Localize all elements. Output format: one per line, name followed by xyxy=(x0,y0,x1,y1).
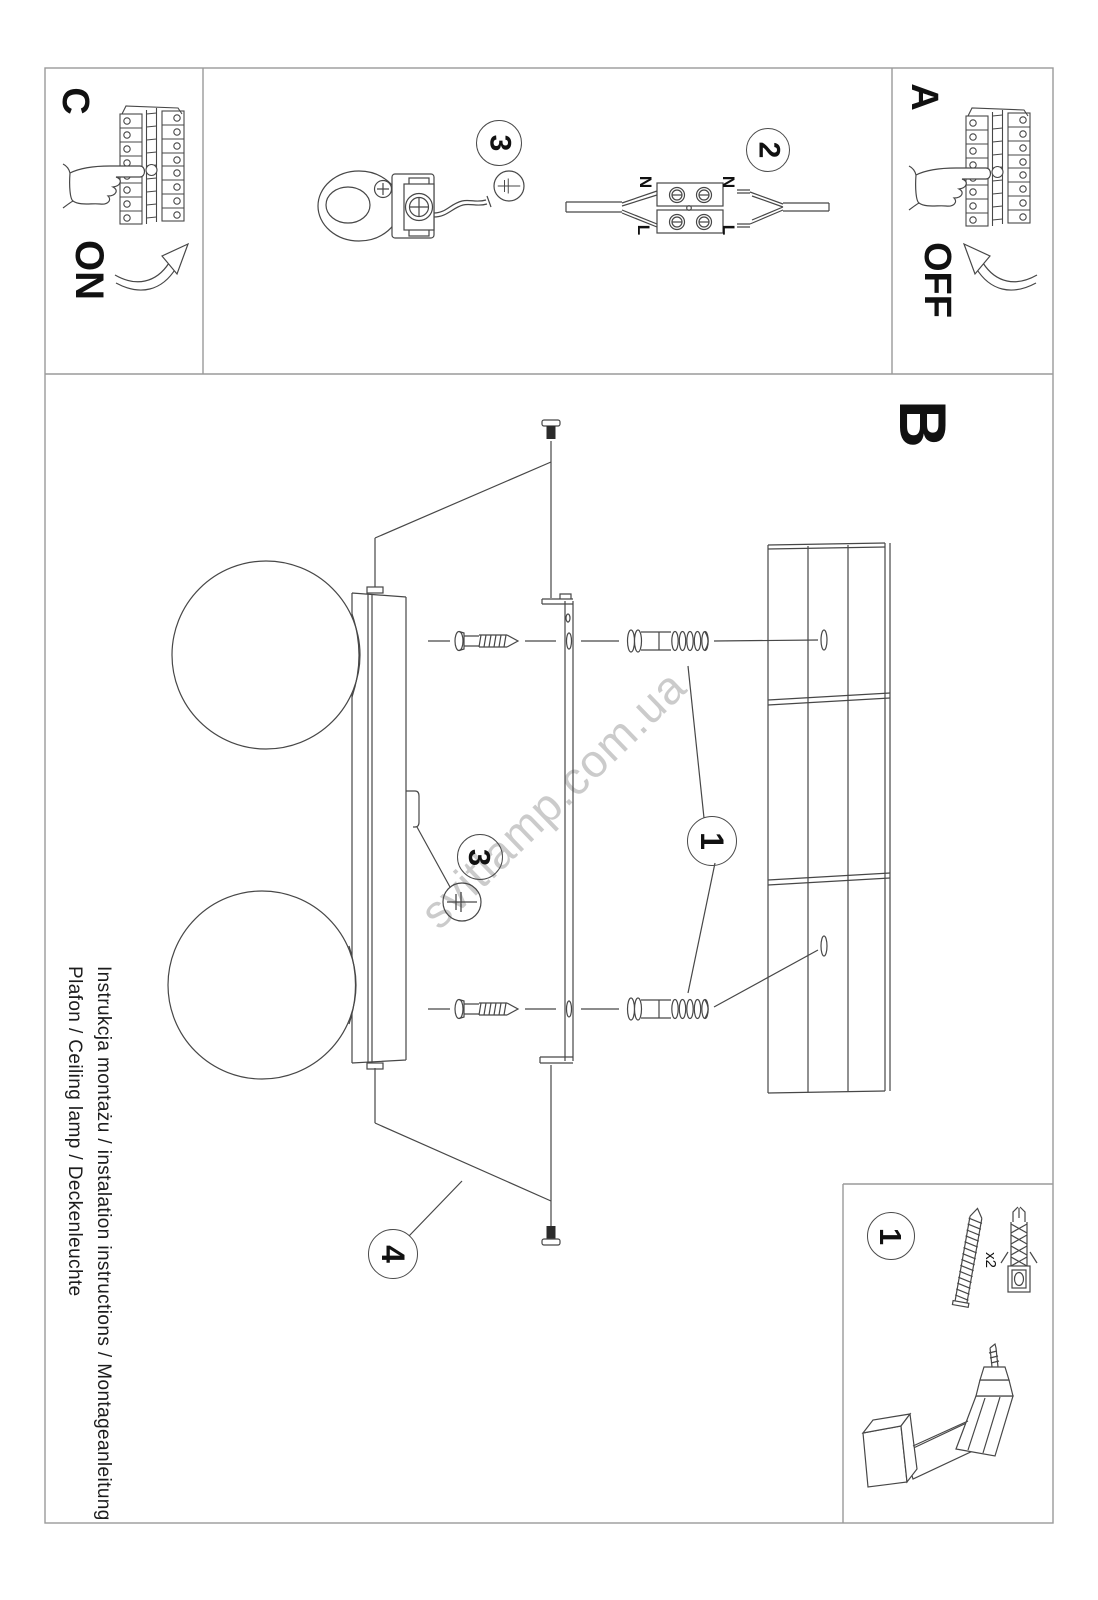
off-arrow-icon xyxy=(964,244,1037,290)
section-label-b: B xyxy=(883,384,963,464)
manual-title-line2: Plafon / Ceiling lamp / Deckenleuchte xyxy=(63,966,85,1297)
lamp-sphere-top xyxy=(172,561,360,749)
kit-wall-plug xyxy=(1001,1207,1037,1292)
wiring-terminals-illustration xyxy=(566,183,829,233)
section-label-c: C xyxy=(45,71,105,131)
wire-label-n-left: N xyxy=(635,171,657,193)
wire-label-l-left: L xyxy=(633,219,655,241)
cable-clamp-illustration xyxy=(318,171,524,241)
callout-clamp-step: 3 xyxy=(476,120,522,166)
top-mount-screw xyxy=(375,420,560,598)
switch-state-off: OFF xyxy=(917,230,957,330)
callout-anchor-step: 1 xyxy=(687,816,737,866)
drill-icon xyxy=(863,1344,1013,1487)
section-label-a: A xyxy=(894,67,954,127)
ceiling-boards xyxy=(768,543,890,1093)
lamp-sphere-bottom xyxy=(168,891,356,1079)
wire-label-n-right: N xyxy=(718,171,740,193)
callout-final-step: 4 xyxy=(368,1229,418,1279)
kit-quantity-label: x2 xyxy=(981,1248,1001,1272)
fixing-row-top xyxy=(428,630,818,652)
fixing-row-bottom xyxy=(428,950,818,1020)
switch-state-on: ON xyxy=(69,220,109,320)
on-arrow-icon xyxy=(115,244,188,290)
wire-label-l-right: L xyxy=(718,219,740,241)
page-borders xyxy=(45,68,1053,1523)
callout-kit-step: 1 xyxy=(867,1212,915,1260)
callout-hook-step: 3 xyxy=(457,834,503,880)
manual-title-line1: Instrukcja montażu / instalation instruc… xyxy=(92,966,114,1521)
hanging-hook xyxy=(406,791,419,827)
mounting-bracket xyxy=(540,594,573,1063)
callout-wiring-step: 2 xyxy=(746,128,790,172)
bottom-mount-screw xyxy=(375,1065,560,1245)
exploded-view xyxy=(168,420,890,1245)
manual-page: svitlamp.com.ua xyxy=(0,0,1098,1600)
